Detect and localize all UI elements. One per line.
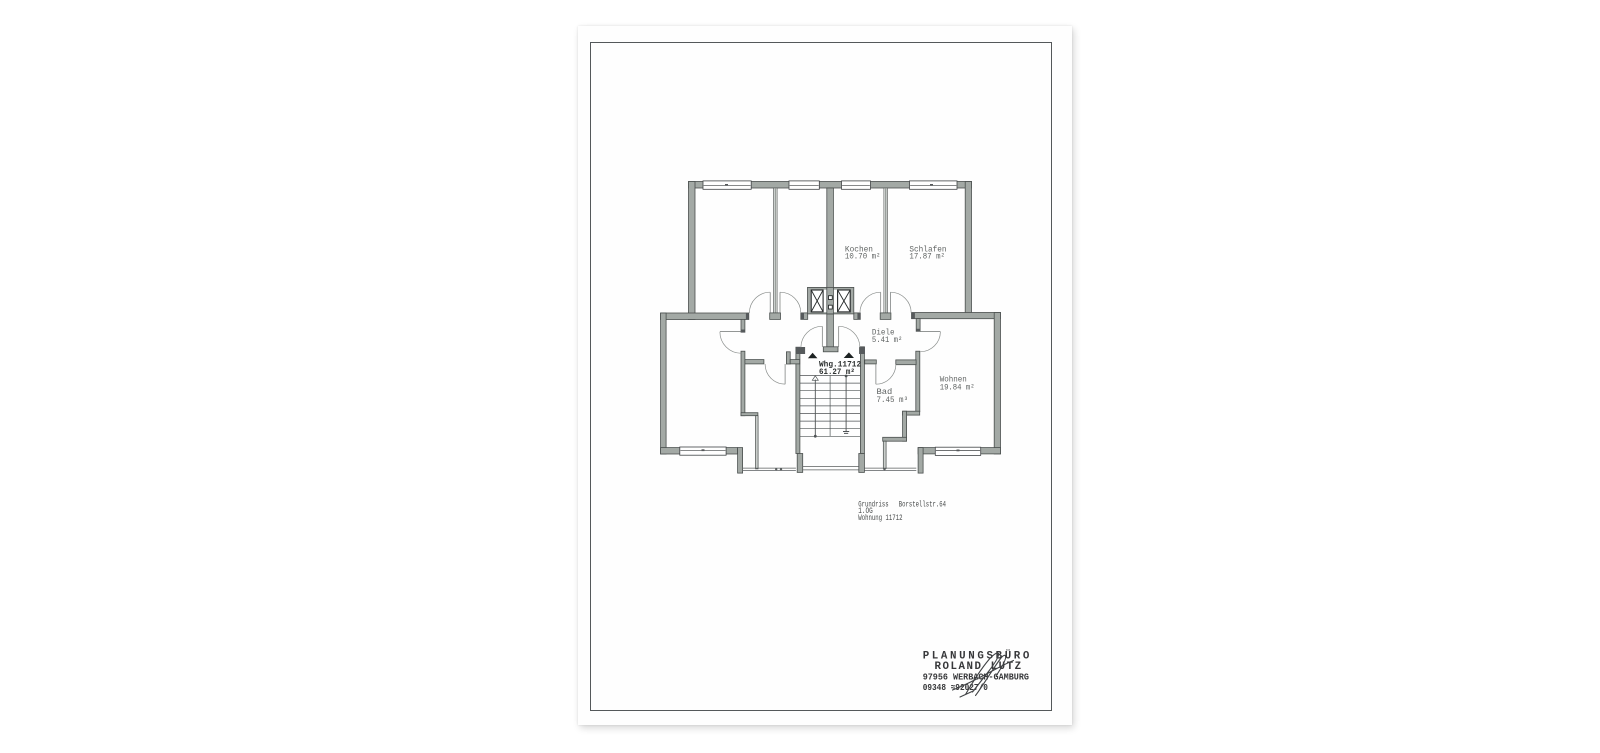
svg-text:Wohnung 11712: Wohnung 11712 bbox=[858, 514, 902, 523]
svg-text:61.27 m²: 61.27 m² bbox=[819, 368, 855, 377]
svg-text:5.41 m²: 5.41 m² bbox=[872, 336, 903, 345]
svg-text:Bad: Bad bbox=[877, 389, 893, 397]
svg-text:17.87 m²: 17.87 m² bbox=[909, 252, 945, 261]
svg-text:10.70 m²: 10.70 m² bbox=[845, 253, 881, 262]
svg-text:Diele: Diele bbox=[872, 329, 895, 337]
svg-text:Wohnen: Wohnen bbox=[940, 377, 967, 385]
svg-text:7.45 m³: 7.45 m³ bbox=[877, 396, 909, 405]
svg-text:19.84 m²: 19.84 m² bbox=[940, 384, 975, 393]
